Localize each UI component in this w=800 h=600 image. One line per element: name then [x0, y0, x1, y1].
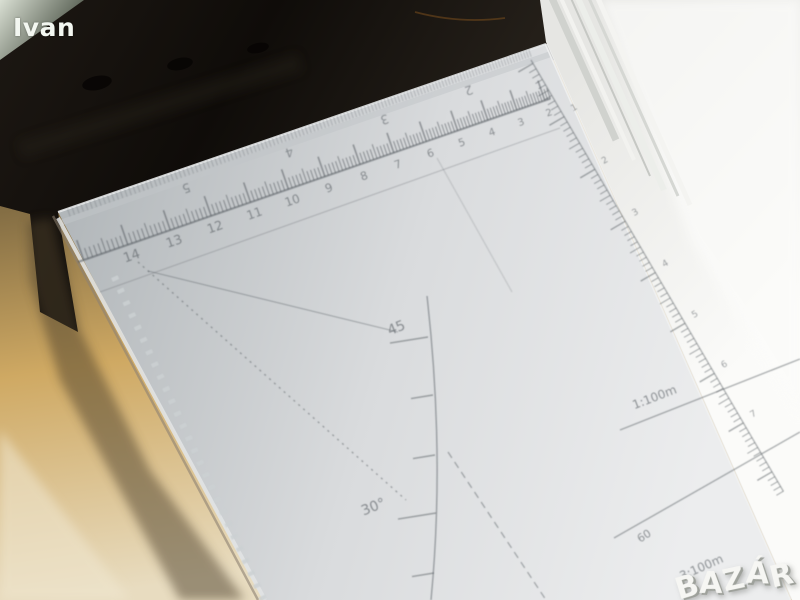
- embossed-tick: [191, 449, 197, 452]
- embossed-tick: [163, 388, 169, 391]
- embossed-tick: [186, 437, 192, 440]
- embossed-tick: [146, 351, 152, 354]
- photo-scene: 141312111098765432 5432 1234567 45 30° 1…: [0, 0, 800, 600]
- embossed-tick: [237, 547, 243, 550]
- watermark-text: Ivan: [13, 13, 75, 42]
- embossed-tick: [248, 572, 254, 575]
- embossed-tick: [225, 523, 231, 526]
- embossed-tick: [231, 535, 237, 538]
- logo-letter: Z: [719, 560, 749, 599]
- embossed-tick: [157, 375, 163, 378]
- embossed-tick: [214, 498, 220, 501]
- embossed-tick: [123, 302, 129, 305]
- embossed-tick: [129, 314, 135, 317]
- embossed-tick: [174, 412, 180, 415]
- embossed-tick: [180, 424, 186, 427]
- embossed-tick: [197, 461, 203, 464]
- embossed-tick: [259, 596, 265, 599]
- embossed-tick: [140, 338, 146, 341]
- embossed-tick: [203, 474, 209, 477]
- embossed-tick: [112, 277, 118, 280]
- embossed-tick: [208, 486, 214, 489]
- embossed-tick: [135, 326, 141, 329]
- photo-canvas: 141312111098765432 5432 1234567 45 30° 1…: [0, 0, 800, 600]
- embossed-tick: [220, 510, 226, 513]
- embossed-tick: [254, 584, 260, 587]
- embossed-tick: [118, 289, 124, 292]
- embossed-tick: [242, 560, 248, 563]
- logo-letter: A: [699, 566, 723, 600]
- embossed-tick: [152, 363, 158, 366]
- embossed-tick: [169, 400, 175, 403]
